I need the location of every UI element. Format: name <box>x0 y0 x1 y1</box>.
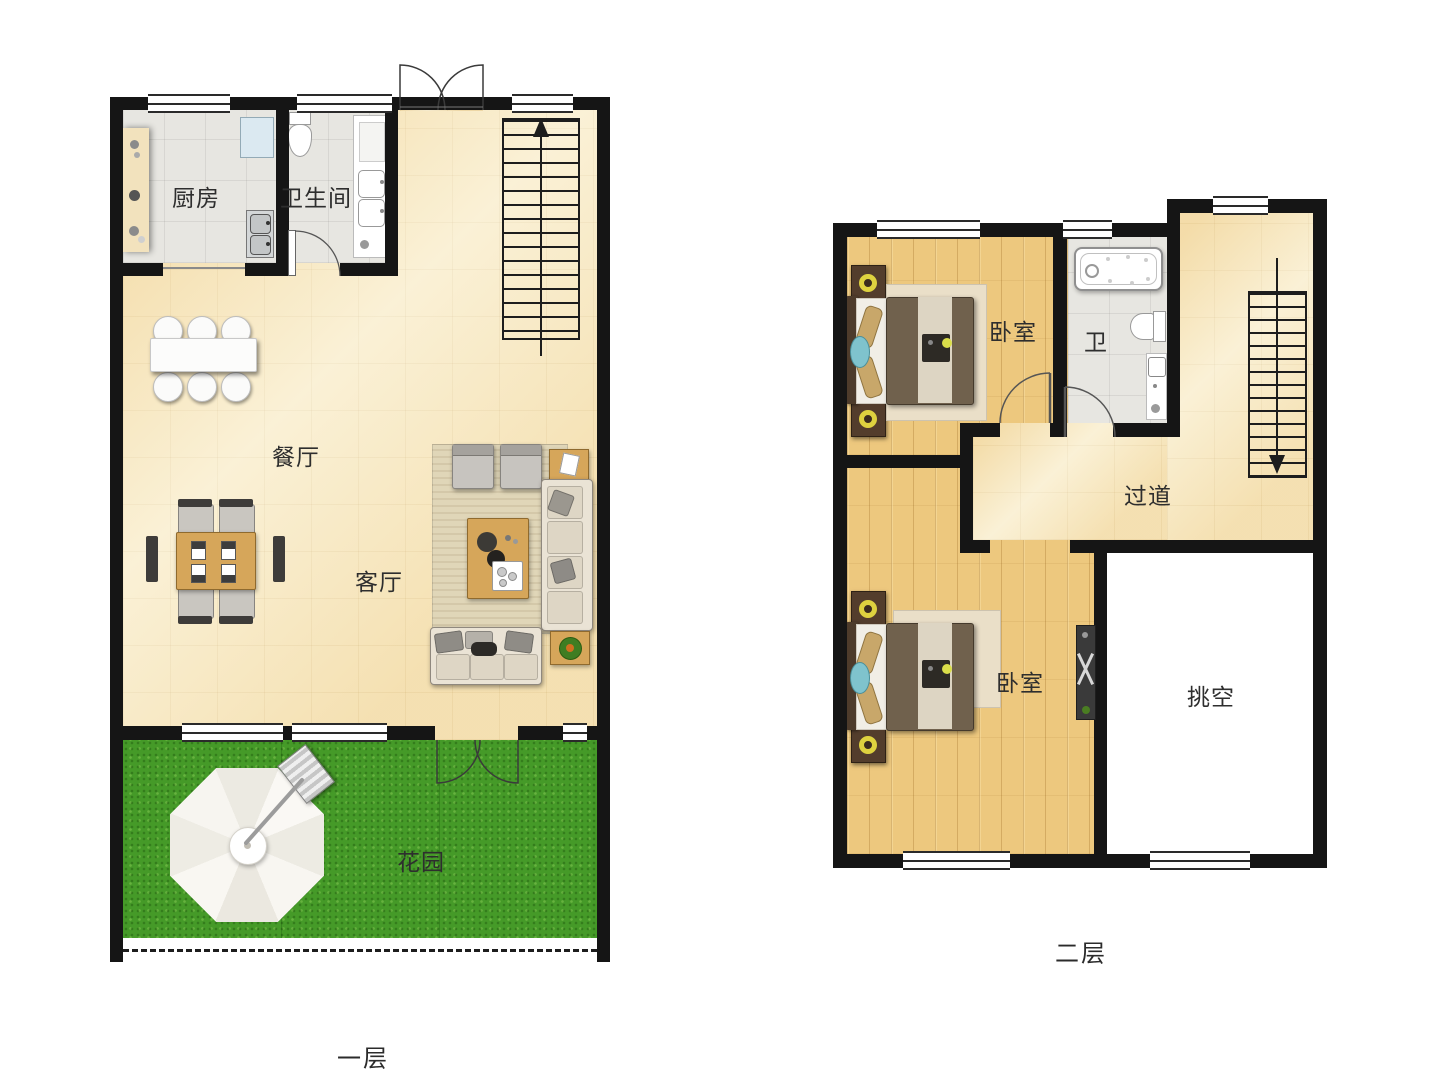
faucet-dot <box>380 180 384 184</box>
sofa-icon <box>541 479 593 631</box>
wall-segment <box>123 263 163 276</box>
window <box>297 94 392 113</box>
wall-segment <box>387 726 435 740</box>
window <box>182 723 283 742</box>
lamp-icon <box>859 736 877 754</box>
mahjong-table-icon <box>176 532 256 590</box>
decor-dot <box>513 539 518 544</box>
decor-dot <box>505 535 511 541</box>
kettle <box>129 226 139 236</box>
kitchen-sink-icon <box>246 210 274 258</box>
cooktop-burner <box>130 140 139 149</box>
kitchen-label: 厨房 <box>172 179 220 213</box>
wall-segment <box>833 455 973 468</box>
window <box>1150 851 1250 870</box>
nightstand-icon <box>851 401 886 437</box>
window <box>563 723 587 742</box>
toilet-tank <box>1153 311 1166 342</box>
wall-segment <box>283 726 292 740</box>
decor-dot <box>928 666 933 671</box>
dining-chair-icon <box>187 372 217 402</box>
wall-segment <box>960 540 990 553</box>
decor-flower <box>129 190 140 201</box>
armchair-icon <box>500 444 542 489</box>
tile-card <box>191 564 206 583</box>
wall-segment <box>1167 213 1180 437</box>
living-label: 客厅 <box>355 563 403 597</box>
lamp-icon <box>859 410 877 428</box>
dining-label: 餐厅 <box>272 438 320 472</box>
tile-card <box>221 541 236 560</box>
bed-icon <box>846 296 972 404</box>
wall-segment <box>1313 199 1327 868</box>
kitchen-counter <box>123 128 149 252</box>
window <box>877 220 980 239</box>
faucet-dot <box>266 221 270 225</box>
bed-icon <box>846 622 972 730</box>
lamp-icon <box>859 274 877 292</box>
stairs-icon <box>1248 291 1307 478</box>
round-pillow <box>850 336 870 368</box>
window <box>1213 196 1268 215</box>
fridge-icon <box>240 117 274 158</box>
side-table-icon <box>550 631 590 665</box>
wall-segment <box>960 423 973 553</box>
wall-segment <box>1113 423 1180 437</box>
tub-drain <box>1085 264 1099 278</box>
decor-flower <box>942 664 952 674</box>
decor-flower <box>1151 404 1160 413</box>
armchair-icon <box>452 444 494 489</box>
floor1-caption: 一层 <box>337 1039 389 1074</box>
window <box>292 723 387 742</box>
vanity-sink <box>358 170 385 198</box>
faucet-dot <box>380 209 384 213</box>
faucet-dot <box>266 242 270 246</box>
vanity-sink <box>358 199 385 227</box>
garden-label: 花园 <box>397 843 445 877</box>
hallway-label: 过道 <box>1124 477 1172 511</box>
decor-dot <box>928 340 933 345</box>
wall-segment <box>973 423 1000 437</box>
wall-segment <box>833 223 847 868</box>
wall-segment <box>245 263 292 276</box>
game-chair-icon <box>178 587 214 619</box>
wall-segment <box>385 110 398 276</box>
sofa-icon <box>430 627 542 685</box>
counter-item <box>359 122 385 162</box>
decor-flower <box>360 240 369 249</box>
plant-flower <box>566 644 574 652</box>
faucet-dot <box>1153 384 1157 388</box>
bathtub-icon <box>1074 247 1163 291</box>
throw-blanket <box>471 642 497 656</box>
bath-door-leaf <box>288 230 296 276</box>
wall-segment <box>518 726 563 740</box>
dining-table-icon <box>150 338 257 372</box>
wall-segment <box>1053 237 1067 437</box>
round-pillow <box>850 662 870 694</box>
decor-dot <box>1082 632 1088 638</box>
garden-seam <box>439 740 440 938</box>
decor-flower <box>942 338 952 348</box>
nightstand-icon <box>851 727 886 763</box>
game-chair-icon <box>273 536 285 582</box>
umbrella-center-knob <box>229 827 267 865</box>
cup <box>138 236 145 243</box>
vanity-sink <box>1148 357 1166 377</box>
wall-segment <box>110 97 123 962</box>
floor-plan-canvas: 厨房 卫生间 餐厅 客厅 花园 一层 <box>0 0 1440 1080</box>
bathroom-label: 卫生间 <box>280 179 352 213</box>
garden-boundary-dashed-line <box>123 949 597 952</box>
wall-segment <box>587 726 597 740</box>
tray <box>492 561 523 591</box>
dining-chair-icon <box>153 372 183 402</box>
bedroom-bottom-label: 卧室 <box>996 664 1044 698</box>
window <box>903 851 1010 870</box>
wall-segment <box>597 97 610 962</box>
bathroom-vanity <box>1146 353 1167 420</box>
stairs-icon <box>502 118 580 340</box>
bathroom-vanity <box>353 115 388 258</box>
wall-segment <box>123 726 182 740</box>
bath2-label: 卫 <box>1084 323 1108 357</box>
book <box>559 452 580 476</box>
window <box>512 94 573 113</box>
void-label: 挑空 <box>1187 678 1235 712</box>
tv-cabinet-icon <box>1076 625 1096 720</box>
game-chair-icon <box>219 587 255 619</box>
window <box>148 94 230 113</box>
plant-icon <box>1082 706 1090 714</box>
side-table-icon <box>549 449 589 481</box>
lamp-icon <box>859 600 877 618</box>
wall-segment <box>1050 423 1067 437</box>
tile-card <box>191 541 206 560</box>
floor2-caption: 二层 <box>1055 934 1107 969</box>
cooktop-burner <box>134 152 140 158</box>
dining-chair-icon <box>221 372 251 402</box>
kitchen-opening-line <box>163 267 245 269</box>
window <box>1063 220 1112 239</box>
coffee-table-icon <box>467 518 529 599</box>
decor-bowl <box>477 532 497 552</box>
bedroom-top-label: 卧室 <box>989 313 1037 347</box>
game-chair-icon <box>146 536 158 582</box>
tile-card <box>221 564 236 583</box>
